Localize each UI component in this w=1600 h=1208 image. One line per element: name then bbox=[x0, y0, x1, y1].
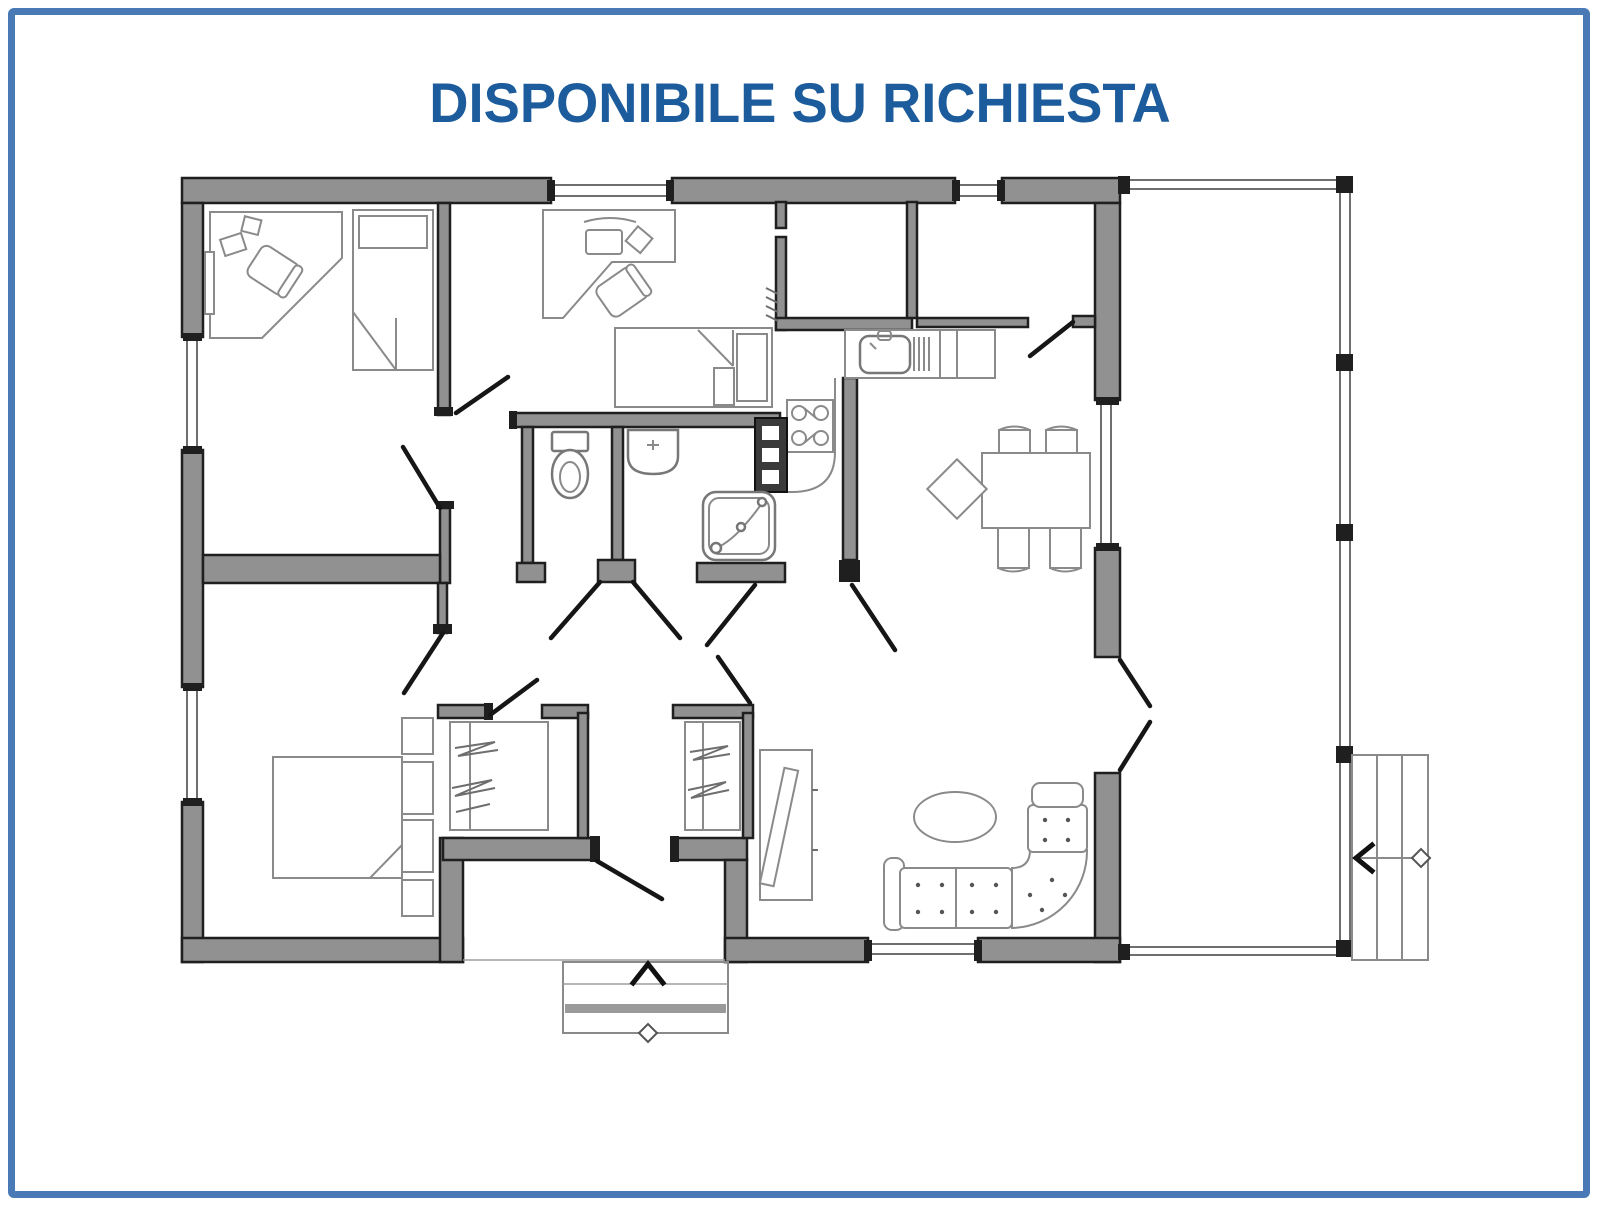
sink bbox=[860, 331, 910, 373]
diamond-marker bbox=[639, 1024, 657, 1042]
desk-shelf bbox=[205, 252, 214, 314]
storage-2-door-leaf bbox=[1030, 322, 1073, 356]
cooktop bbox=[787, 400, 833, 452]
window-west-2 bbox=[183, 683, 202, 806]
oval-coffee-table bbox=[914, 792, 996, 842]
window-top-2 bbox=[952, 180, 1005, 201]
nightstand bbox=[402, 880, 433, 916]
closet-1-door-leaf bbox=[490, 680, 537, 715]
shower-door-leaf bbox=[707, 585, 755, 645]
bedroom-3-furniture bbox=[273, 718, 433, 916]
nightstand bbox=[402, 718, 433, 754]
single-bed bbox=[353, 210, 433, 370]
dining-chair bbox=[999, 427, 1030, 454]
screenshot-canvas: DISPONIBILE SU RICHIESTA bbox=[0, 0, 1600, 1208]
bedroom-2-door-leaf bbox=[456, 377, 508, 413]
interior-walls bbox=[203, 202, 1095, 838]
entry-steps bbox=[463, 960, 728, 1042]
wardrobe-closet-2 bbox=[685, 722, 740, 830]
pillow bbox=[359, 216, 427, 248]
desk-item bbox=[241, 216, 261, 235]
dining-chair-rotated bbox=[927, 459, 986, 518]
closet-2-door-leaf bbox=[718, 657, 750, 703]
clothes-hangers-icon bbox=[452, 742, 498, 812]
dining-set bbox=[927, 427, 1090, 572]
pillow bbox=[402, 762, 433, 814]
front-door-leaf bbox=[597, 861, 662, 899]
sofa-corner bbox=[1012, 850, 1087, 928]
floor-plan bbox=[0, 0, 1600, 1208]
shower-icon bbox=[703, 492, 775, 560]
pillow bbox=[737, 334, 767, 401]
monitor bbox=[586, 230, 622, 254]
kitchen-door-leaf bbox=[852, 585, 895, 650]
clothes-hangers-icon bbox=[688, 746, 730, 798]
toilet-icon bbox=[552, 432, 588, 498]
wc-door-leaf bbox=[551, 582, 600, 638]
dining-chair bbox=[998, 528, 1029, 572]
double-bed bbox=[273, 757, 402, 878]
porch-door-leaf-lower bbox=[1120, 722, 1150, 770]
window-south bbox=[864, 940, 982, 961]
porch-door-leaf-upper bbox=[1120, 660, 1150, 706]
bathroom-fixtures bbox=[552, 430, 775, 560]
bedroom-1-furniture bbox=[205, 210, 433, 370]
dining-chair bbox=[1046, 427, 1077, 454]
wardrobe-closet-1 bbox=[450, 722, 548, 830]
washbasin-icon bbox=[628, 430, 678, 474]
sofa-armrest bbox=[1032, 783, 1083, 807]
living-room-furniture bbox=[760, 750, 1087, 930]
window-west-1 bbox=[183, 333, 202, 454]
tv-sideboard bbox=[760, 750, 818, 900]
dining-table bbox=[982, 453, 1090, 528]
porch-veranda bbox=[1118, 176, 1430, 960]
window-east bbox=[1096, 397, 1119, 551]
up-arrow-icon bbox=[633, 964, 663, 983]
tall-appliance-column bbox=[755, 418, 787, 492]
bedroom-3-door-leaf bbox=[404, 633, 443, 693]
porch-side-steps bbox=[1352, 755, 1430, 960]
single-bed bbox=[615, 328, 772, 407]
basin-door-leaf bbox=[633, 582, 680, 638]
pillow bbox=[402, 820, 433, 872]
window-top-1 bbox=[547, 180, 674, 201]
bedroom-1-door-leaf bbox=[403, 447, 440, 508]
bedroom-2-furniture bbox=[543, 210, 772, 407]
dining-chair bbox=[1050, 528, 1081, 572]
